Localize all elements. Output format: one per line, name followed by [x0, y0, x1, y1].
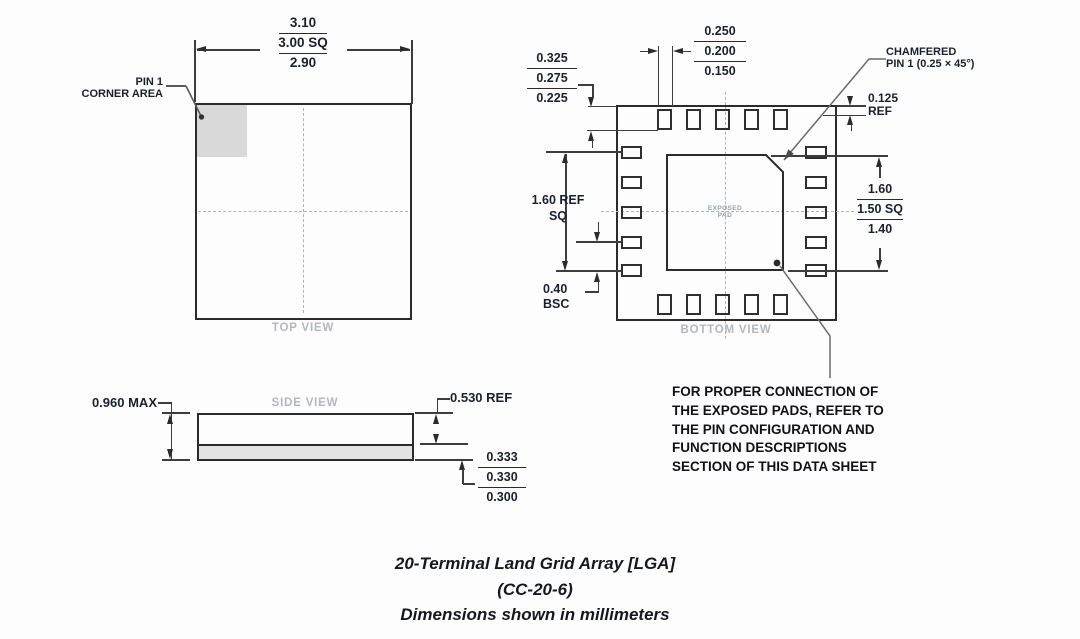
- dimension-line: [879, 166, 881, 178]
- dim-value: 0.40: [543, 282, 587, 297]
- leader-line: [437, 398, 450, 400]
- dim-separator: [279, 53, 327, 54]
- leader-line: [462, 469, 464, 484]
- terminal-length-dimension: 0.325 0.275 0.225: [524, 50, 580, 106]
- extension-line: [588, 106, 616, 107]
- dim-value: 0.275: [524, 70, 580, 86]
- caption-title: 20-Terminal Land Grid Array [LGA]: [235, 551, 835, 577]
- bottom-view-label: BOTTOM VIEW: [666, 324, 786, 336]
- terminal-strip-shade: [199, 446, 412, 459]
- dim-separator: [857, 219, 903, 220]
- dimension-line: [592, 140, 594, 148]
- dim-separator: [694, 61, 746, 62]
- dim-value: 0.150: [690, 63, 750, 79]
- terminal-pad: [686, 294, 701, 315]
- terminal-pad: [744, 109, 759, 130]
- extension-line: [546, 151, 622, 152]
- extension-line: [672, 46, 673, 106]
- lga-package-drawing: 3.10 3.00 SQ 2.90 PIN 1 CORNER AREA TOP …: [0, 0, 1080, 639]
- dimension-line: [197, 49, 260, 51]
- terminal-pad: [657, 294, 672, 315]
- terminal-pad: [621, 206, 642, 219]
- arrowhead: [167, 449, 173, 459]
- exposed-pad-label-line: PAD: [697, 212, 753, 219]
- dim-value: 0.225: [524, 90, 580, 106]
- terminal-pad: [715, 294, 730, 315]
- dim-value: 0.333: [476, 449, 528, 465]
- arrowhead: [400, 46, 410, 52]
- body-size-dimension: 3.10 3.00 SQ 2.90: [255, 15, 351, 71]
- dim-qualifier: BSC: [543, 297, 587, 312]
- extension-line: [587, 130, 658, 131]
- callout-line: CORNER AREA: [50, 89, 163, 101]
- top-view-centerline-v: [303, 108, 304, 313]
- leader-line: [585, 291, 599, 293]
- arrowhead: [433, 414, 439, 424]
- leader-line: [166, 85, 186, 87]
- leader-line: [463, 483, 475, 485]
- side-view-label: SIDE VIEW: [250, 397, 360, 409]
- extension-line: [420, 443, 468, 444]
- exposed-pad-size-dimension: 1.60 1.50 SQ 1.40: [849, 181, 911, 237]
- dim-separator: [694, 41, 746, 42]
- extension-line: [658, 46, 659, 106]
- pin1-corner-callout: PIN 1 CORNER AREA: [50, 77, 163, 100]
- note-line: THE EXPOSED PADS, REFER TO: [672, 402, 982, 421]
- extension-line: [162, 459, 190, 461]
- terminal-pad: [715, 109, 730, 130]
- terminal-pad: [744, 294, 759, 315]
- terminal-pad: [773, 109, 788, 130]
- dim-separator: [478, 467, 526, 468]
- side-view-divider: [199, 444, 412, 446]
- chamfer-ref-dimension: 0.125 REF: [868, 92, 928, 118]
- pin1-corner-shade: [197, 105, 247, 157]
- terminal-pad: [621, 236, 642, 249]
- overall-height-dimension: 0.960 MAX: [60, 395, 157, 410]
- leader-line: [171, 402, 173, 413]
- chamfer-callout: CHAMFERED PIN 1 (0.25 × 45°): [886, 46, 1026, 70]
- leader-line: [578, 84, 593, 86]
- note-line: SECTION OF THIS DATA SHEET: [672, 458, 982, 477]
- extension-line: [411, 40, 413, 104]
- leader-line: [592, 84, 594, 97]
- dim-separator: [857, 199, 903, 200]
- note-line: FUNCTION DESCRIPTIONS: [672, 439, 982, 458]
- dim-separator: [527, 68, 577, 69]
- callout-line: CHAMFERED: [886, 46, 1026, 58]
- arrowhead: [847, 96, 853, 106]
- terminal-pad: [805, 176, 827, 189]
- dim-value: 2.90: [255, 55, 351, 71]
- terminal-pad: [805, 146, 827, 159]
- extension-line: [771, 155, 888, 156]
- dimension-line: [851, 124, 853, 131]
- dim-value: 3.10: [255, 15, 351, 31]
- arrowhead: [648, 48, 658, 54]
- dim-qualifier: SQ: [516, 208, 600, 224]
- arrowhead: [562, 153, 568, 163]
- arrowhead: [673, 48, 683, 54]
- top-view-label: TOP VIEW: [243, 322, 363, 334]
- dim-value: 1.60: [849, 181, 911, 197]
- extension-line: [788, 270, 888, 271]
- caption-units: Dimensions shown in millimeters: [235, 602, 835, 628]
- extension-line: [162, 412, 190, 414]
- dim-value: 0.325: [524, 50, 580, 66]
- terminal-pad: [621, 264, 642, 277]
- dim-value: 0.330: [476, 469, 528, 485]
- dim-value: 0.200: [690, 43, 750, 59]
- arrowhead: [196, 46, 206, 52]
- terminal-pad: [621, 146, 642, 159]
- exposed-pad-note: FOR PROPER CONNECTION OF THE EXPOSED PAD…: [672, 383, 982, 477]
- arrowhead: [594, 232, 600, 242]
- dim-value: 1.50 SQ: [849, 201, 911, 217]
- exposed-pad-label-line: EXPOSED: [697, 205, 753, 212]
- dim-separator: [527, 88, 577, 89]
- terminal-pad: [621, 176, 642, 189]
- terminal-pad: [657, 109, 672, 130]
- arrowhead: [876, 260, 882, 270]
- exposed-pad-label: EXPOSED PAD: [697, 205, 753, 219]
- caption-package-code: (CC-20-6): [235, 577, 835, 603]
- dimension-line: [598, 222, 600, 232]
- dim-separator: [279, 33, 327, 34]
- note-line: THE PIN CONFIGURATION AND: [672, 421, 982, 440]
- terminal-pad: [686, 109, 701, 130]
- dimension-line: [879, 248, 881, 260]
- callout-line: PIN 1 (0.25 × 45°): [886, 58, 1026, 70]
- note-line: FOR PROPER CONNECTION OF: [672, 383, 982, 402]
- dim-value: 0.300: [476, 489, 528, 505]
- callout-line: PIN 1: [50, 77, 163, 89]
- dim-value: 3.00 SQ: [255, 35, 351, 51]
- terminal-height-dimension: 0.333 0.330 0.300: [476, 449, 528, 505]
- dim-separator: [478, 487, 526, 488]
- dimension-line: [640, 51, 648, 53]
- arrowhead: [167, 414, 173, 424]
- terminal-width-dimension: 0.250 0.200 0.150: [690, 23, 750, 79]
- pitch-dimension: 0.40 BSC: [543, 282, 587, 312]
- terminal-span-dimension: 1.60 REF SQ: [516, 192, 600, 224]
- dim-value: 1.60 REF: [516, 192, 600, 208]
- body-height-dimension: 0.530 REF: [450, 390, 550, 405]
- dim-qualifier: REF: [868, 105, 928, 118]
- terminal-pad: [805, 236, 827, 249]
- terminal-pad: [805, 206, 827, 219]
- arrowhead: [562, 261, 568, 271]
- dim-value: 1.40: [849, 221, 911, 237]
- terminal-pad: [773, 294, 788, 315]
- dim-value: 0.250: [690, 23, 750, 39]
- figure-caption: 20-Terminal Land Grid Array [LGA] (CC-20…: [235, 551, 835, 628]
- extension-line: [823, 115, 866, 116]
